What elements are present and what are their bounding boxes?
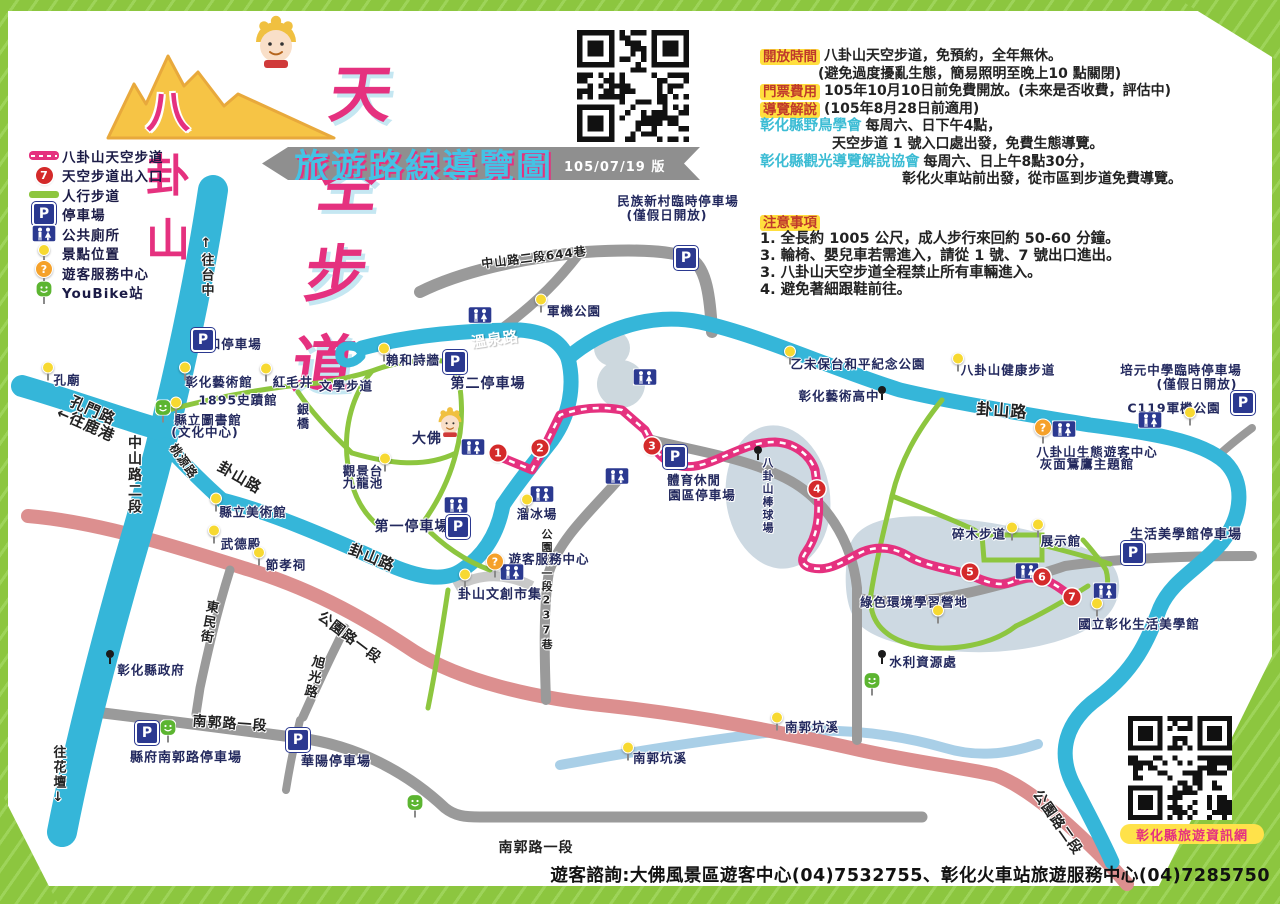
info-panel: 開放時間八卦山天空步道，免預約，全年無休。(避免過度擾亂生態，簡易照明至晚上10… [760, 48, 1260, 189]
legend-item: ?遊客服務中心 [26, 263, 164, 283]
legend-icon-cell [26, 281, 62, 304]
gray-roads [95, 251, 1252, 817]
note-line: 1. 全長約 1005 公尺，成人步行來回約 50-60 分鐘。 [760, 231, 1265, 248]
legend-item: 八卦山天空步道 [26, 146, 164, 166]
notes-heading-badge: 注意事項 [760, 215, 820, 231]
legend: 八卦山天空步道7天空步道出入口人行步道P停車場公共廁所景點位置?遊客服務中心Yo… [26, 146, 164, 302]
info-text: (避免過度擾亂生態，簡易照明至晚上10 點關閉) [818, 66, 1121, 84]
legend-label: 人行步道 [62, 185, 120, 205]
legend-label: 停車場 [62, 204, 106, 224]
legend-label: 天空步道出入口 [62, 165, 164, 185]
info-text: (105年8月28日前適用) [824, 101, 979, 119]
info-text: 彰化火車站前出發，從市區到步道免費導覽。 [902, 171, 1182, 189]
note-line: 4. 避免著細跟鞋前往。 [760, 282, 1265, 299]
info-text: 八卦山天空步道，免預約，全年無休。 [824, 48, 1062, 66]
parking-icon: P [32, 202, 56, 226]
notes-panel: 注意事項 1. 全長約 1005 公尺，成人步行來回約 50-60 分鐘。3. … [760, 212, 1265, 299]
legend-label: 公共廁所 [62, 224, 120, 244]
info-row: 彰化縣野鳥學會每周六、日下午4點， [760, 118, 1260, 136]
note-line: 3. 八卦山天空步道全程禁止所有車輛進入。 [760, 265, 1265, 282]
info-text: 每周六、日上午8點30分， [924, 154, 1093, 172]
skywalk-route-swatch [29, 151, 59, 160]
legend-item: 7天空步道出入口 [26, 166, 164, 186]
qr-caption: 彰化縣旅遊資訊網 [1120, 824, 1264, 844]
legend-icon-cell: 7 [26, 167, 62, 184]
info-row: (避免過度擾亂生態，簡易照明至晚上10 點關閉) [818, 66, 1260, 84]
legend-label: 八卦山天空步道 [62, 146, 164, 166]
legend-item: YouBike站 [26, 283, 164, 303]
info-badge: 導覽解說 [760, 102, 820, 118]
legend-item: P停車場 [26, 205, 164, 225]
legend-list: 八卦山天空步道7天空步道出入口人行步道P停車場公共廁所景點位置?遊客服務中心Yo… [26, 146, 164, 302]
info-row: 門票費用105年10月10日前免費開放。(未來是否收費，評估中) [760, 83, 1260, 101]
info-text: 105年10月10日前免費開放。(未來是否收費，評估中) [824, 83, 1171, 101]
qr-code-top [577, 30, 689, 142]
notes-list: 1. 全長約 1005 公尺，成人步行來回約 50-60 分鐘。3. 輪椅、嬰兒… [760, 231, 1265, 299]
misc-gray-arc [455, 576, 532, 587]
info-text: 每周六、日下午4點， [866, 118, 1002, 136]
info-text: 天空步道 1 號入口處出發，免費生態導覽。 [832, 136, 1104, 154]
legend-label: 遊客服務中心 [62, 263, 149, 283]
legend-item: 公共廁所 [26, 224, 164, 244]
org-name: 彰化縣野鳥學會 [760, 118, 862, 136]
legend-label: YouBike站 [62, 282, 144, 302]
info-row: 天空步道 1 號入口處出發，免費生態導覽。 [832, 136, 1260, 154]
qr-code-bottom [1128, 716, 1232, 820]
legend-icon-cell [26, 225, 62, 242]
note-line: 3. 輪椅、嬰兒車若需進入，請從 1 號、7 號出口進出。 [760, 248, 1265, 265]
tourist-map-poster: 八卦山 天空步道 旅遊路線導覽圖 105/07/19 版 彰化縣旅遊資訊網 八卦… [0, 0, 1280, 904]
youbike-icon [36, 281, 52, 304]
footpath-swatch [29, 191, 59, 198]
info-row: 開放時間八卦山天空步道，免預約，全年無休。 [760, 48, 1260, 66]
contact-footer: 遊客諮詢:大佛風景區遊客中心(04)7532755、彰化火車站旅遊服務中心(04… [550, 862, 1270, 887]
toilet-icon [32, 225, 56, 242]
entrance-number-icon: 7 [36, 167, 53, 184]
legend-label: 景點位置 [62, 243, 120, 263]
info-row: 導覽解說(105年8月28日前適用) [760, 101, 1260, 119]
info-row: 彰化火車站前出發，從市區到步道免費導覽。 [902, 171, 1260, 189]
legend-icon-cell [26, 191, 62, 198]
org-name: 彰化縣觀光導覽解說協會 [760, 154, 920, 172]
legend-icon-cell: P [26, 202, 62, 226]
info-row: 彰化縣觀光導覽解說協會每周六、日上午8點30分， [760, 154, 1260, 172]
legend-icon-cell [26, 151, 62, 160]
info-badge: 開放時間 [760, 49, 820, 65]
info-badge: 門票費用 [760, 84, 820, 100]
